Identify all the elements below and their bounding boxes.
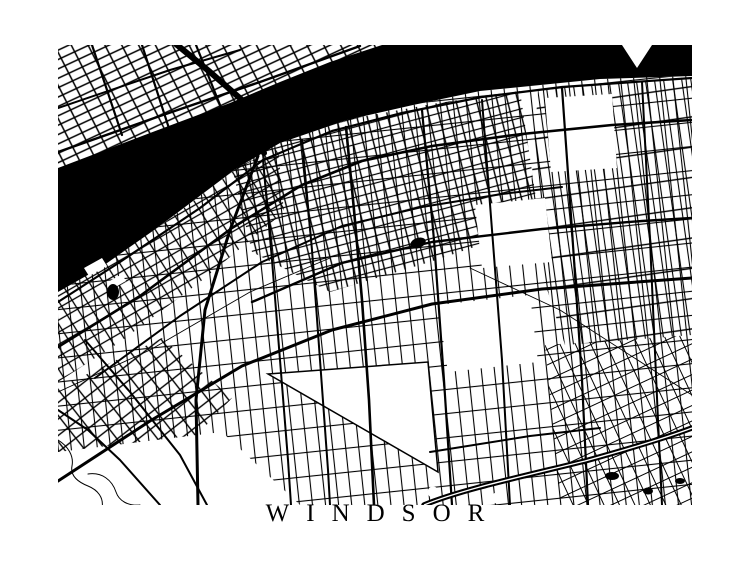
city-title: WINDSOR [0, 500, 750, 528]
map-print: WINDSOR [0, 0, 750, 563]
street-grid-southeast [545, 335, 692, 505]
map-canvas [0, 0, 750, 563]
roundabout [428, 487, 439, 498]
